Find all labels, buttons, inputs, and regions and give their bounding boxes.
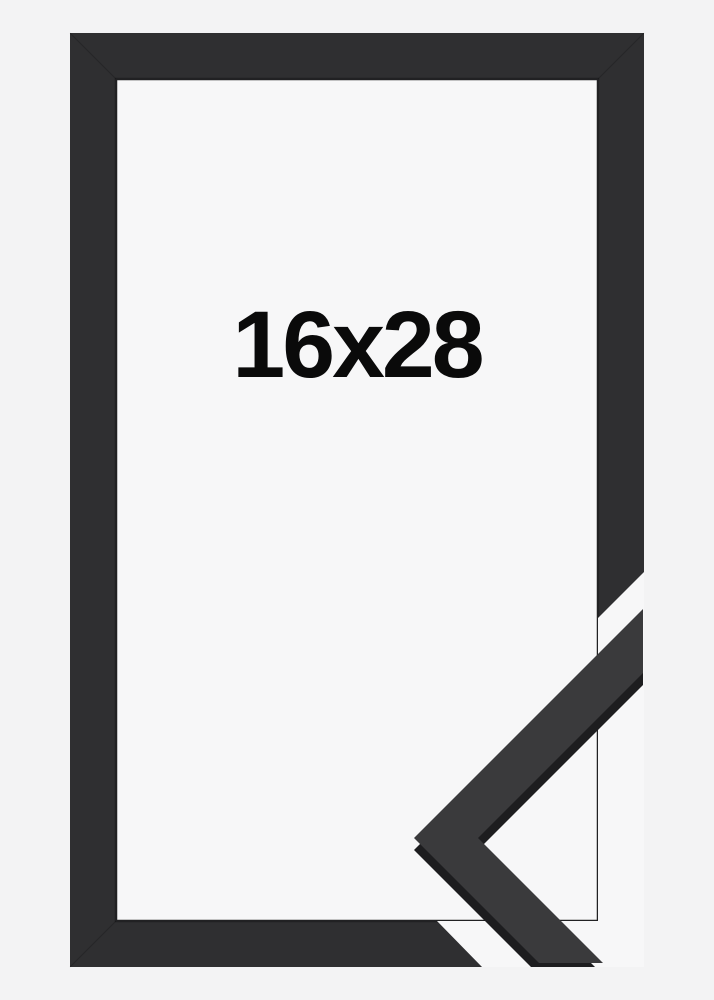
frame-illustration bbox=[0, 0, 714, 1000]
size-label: 16x28 bbox=[70, 293, 644, 398]
frame-product-photo: 16x28 bbox=[0, 0, 714, 1000]
